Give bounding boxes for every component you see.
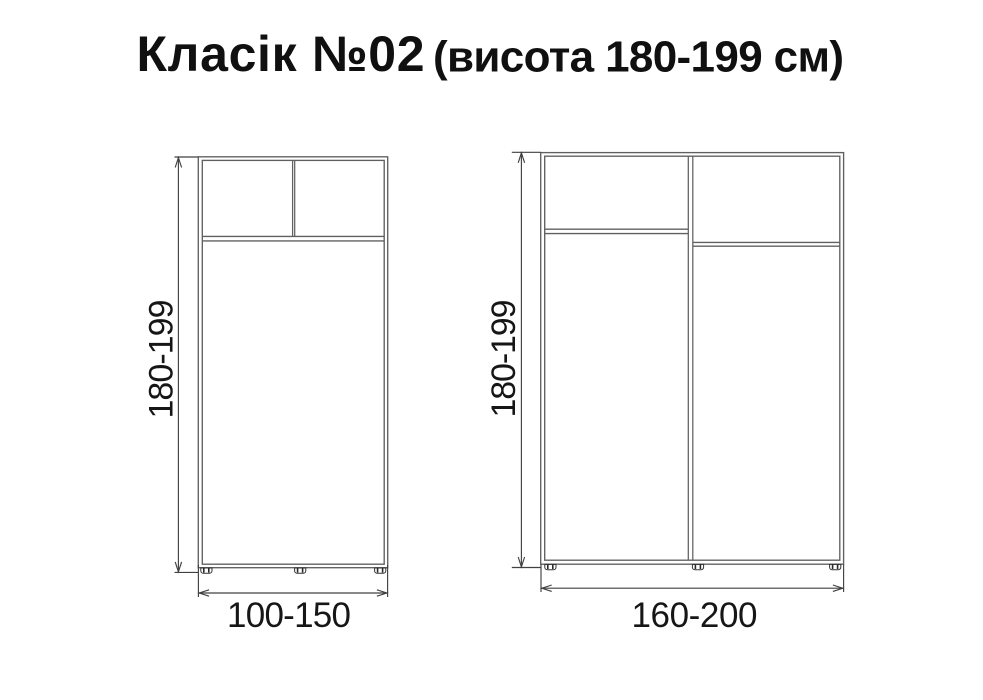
svg-text:180-199: 180-199	[143, 300, 181, 419]
svg-text:(висота 180-199 см): (висота 180-199 см)	[433, 32, 844, 81]
svg-text:Класік №02: Класік №02	[137, 26, 425, 82]
svg-text:100-150: 100-150	[227, 596, 351, 635]
svg-text:160-200: 160-200	[632, 596, 758, 635]
svg-text:180-199: 180-199	[485, 300, 523, 418]
